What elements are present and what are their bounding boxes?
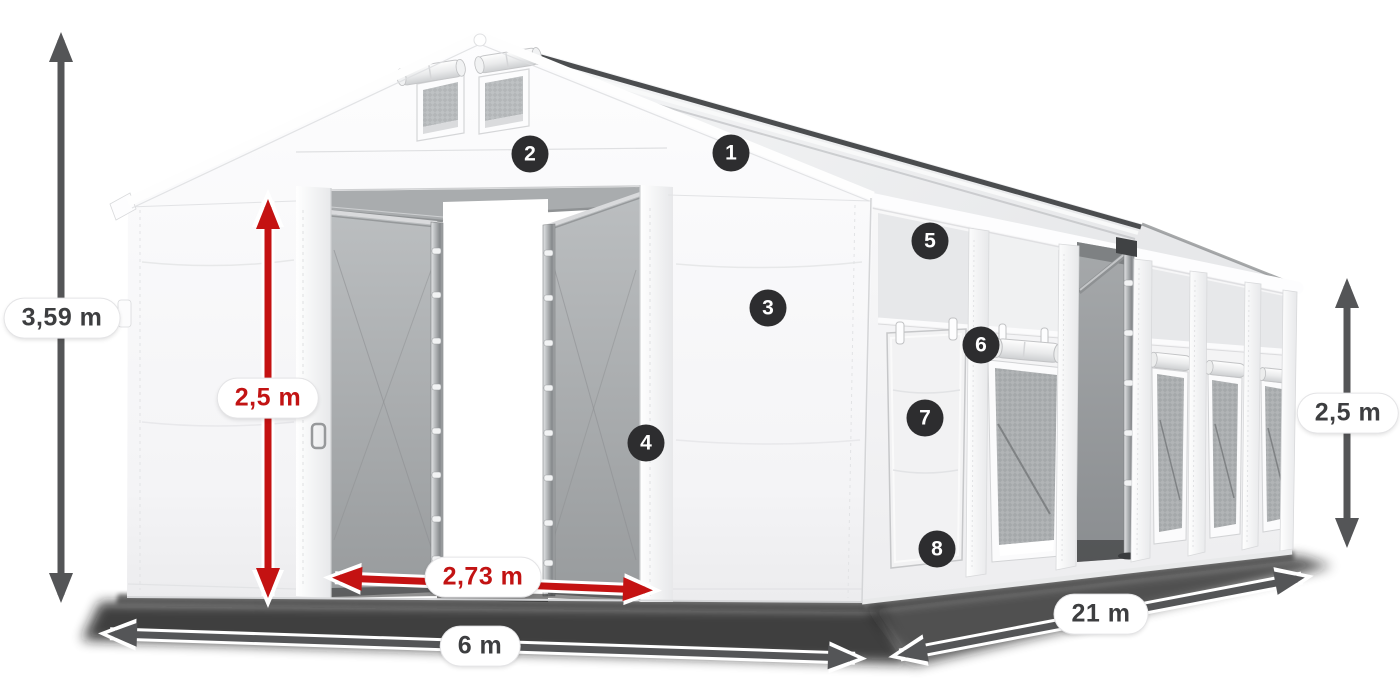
callout-badge-7: 7 (907, 400, 944, 437)
tent-diagram: 3,59 m 2,5 m 2,73 m 6 m 21 m 2,5 m 1 2 3… (0, 0, 1400, 700)
entrance-opening (331, 186, 640, 602)
callout-badge-8: 8 (919, 531, 956, 568)
callout-badge-1: 1 (713, 135, 750, 172)
callout-badge-5: 5 (912, 223, 949, 260)
door-leaf-right (543, 194, 640, 602)
dimension-label-entrance-height: 2,5 m (218, 379, 318, 418)
door-hook (949, 318, 957, 340)
wall-tab (118, 300, 131, 327)
tent-illustration (0, 0, 1400, 700)
dimension-label-side-wall-height: 2,5 m (1298, 394, 1398, 433)
dimension-label-total-height: 3,59 m (5, 299, 120, 338)
side-wall-opening (1077, 237, 1140, 562)
dimension-label-entrance-width: 2,73 m (426, 558, 541, 597)
door-leaf-left (331, 212, 443, 598)
side-door-panel (887, 318, 966, 568)
door-hook (896, 322, 904, 344)
rear-mesh-windows (1148, 352, 1295, 544)
callout-badge-2: 2 (512, 136, 549, 173)
callout-badge-6: 6 (963, 327, 1000, 364)
dimension-label-width: 6 m (441, 627, 520, 666)
callout-badge-4: 4 (628, 425, 665, 462)
dimension-label-length: 21 m (1055, 595, 1148, 634)
steel-pole (543, 224, 555, 596)
steel-pole (431, 222, 443, 594)
callout-badge-3: 3 (750, 290, 787, 327)
